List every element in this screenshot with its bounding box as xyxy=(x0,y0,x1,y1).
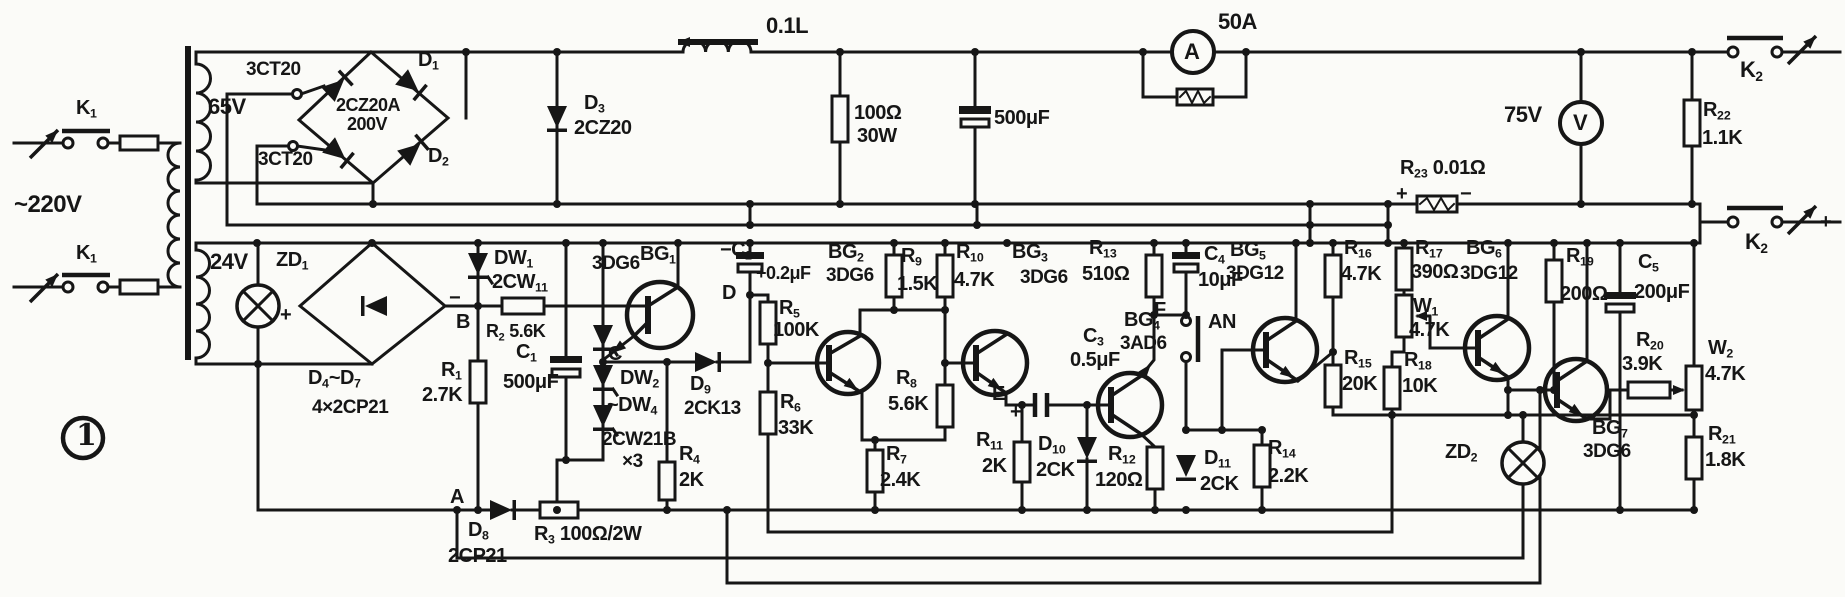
label-bridge1-type: 2CZ20A xyxy=(336,96,400,115)
label-c1: C1 xyxy=(516,342,537,365)
label-bg1-type: 3DG6 xyxy=(592,254,640,274)
label-r18-value: 10K xyxy=(1402,376,1437,397)
label-c1-value: 500μF xyxy=(503,372,558,393)
labels-layer: K1 K1 ~220V 65V 3CT20 3CT20 D1 D2 2CZ20A… xyxy=(0,0,1845,597)
label-r11-value: 2K xyxy=(982,456,1007,477)
label-r5: R5 xyxy=(779,298,800,321)
label-node-e: E xyxy=(992,384,1005,405)
label-node-b: B xyxy=(456,312,470,333)
label-bridge2-plus: + xyxy=(280,305,291,326)
label-100ohm: 100Ω xyxy=(854,103,901,124)
label-r17-value: 390Ω xyxy=(1411,262,1458,283)
label-w2-value: 4.7K xyxy=(1705,364,1745,385)
label-65v: 65V xyxy=(208,95,246,118)
label-r5-value: 100K xyxy=(773,320,819,341)
label-r15-value: 20K xyxy=(1342,374,1377,395)
label-bg1: BG1 xyxy=(640,244,676,267)
label-75v: 75V xyxy=(1504,103,1542,126)
label-r7: R7 xyxy=(886,444,907,467)
label-an: AN xyxy=(1208,312,1236,333)
label-r22: R22 xyxy=(1703,100,1731,123)
label-zd2: ZD2 xyxy=(1445,442,1478,465)
label-r14: R14 xyxy=(1268,438,1296,461)
label-bg4-type: 3AD6 xyxy=(1120,334,1167,354)
label-d8: D8 xyxy=(468,520,489,543)
label-50a: 50A xyxy=(1218,10,1257,33)
label-d10: D10 xyxy=(1038,434,1066,457)
label-bg6-type: 3DG12 xyxy=(1460,264,1518,284)
label-30w: 30W xyxy=(857,126,897,147)
label-k2-top: K2 xyxy=(1740,58,1763,84)
label-r11: R11 xyxy=(976,430,1003,453)
label-r1: R1 xyxy=(441,360,462,383)
label-r23-plus: + xyxy=(1396,184,1407,205)
label-r23-minus: − xyxy=(1460,184,1471,205)
label-node-f: F xyxy=(1154,300,1166,321)
label-c3-minus: − xyxy=(1054,396,1065,417)
label-node-a: A xyxy=(450,487,464,508)
label-zd1: ZD1 xyxy=(276,250,309,273)
label-d10-type: 2CK xyxy=(1036,460,1075,481)
label-d4-d7-type: 4×2CP21 xyxy=(312,398,388,418)
label-d9: D9 xyxy=(690,374,711,397)
label-r1-value: 2.7K xyxy=(422,385,462,406)
label-r16-value: 4.7K xyxy=(1341,264,1381,285)
label-24v: 24V xyxy=(210,250,248,273)
label-bg7-type: 3DG6 xyxy=(1583,442,1631,462)
label-r8-value: 5.6K xyxy=(888,394,928,415)
label-c3-plus: + xyxy=(1010,402,1021,423)
label-r23: R23 0.01Ω xyxy=(1400,158,1485,181)
label-r13: R13 xyxy=(1089,238,1117,261)
label-d1: D1 xyxy=(418,50,439,73)
label-3ct20-top: 3CT20 xyxy=(246,60,301,80)
label-c4: C4 xyxy=(1204,244,1225,267)
label-k1-bottom: K1 xyxy=(76,243,97,266)
label-c5: C5 xyxy=(1638,252,1659,275)
label-r21: R21 xyxy=(1708,424,1736,447)
label-c3: C3 xyxy=(1083,326,1104,349)
label-r9-value: 1.5K xyxy=(897,274,937,295)
label-r20-value: 3.9K xyxy=(1622,354,1662,375)
label-r10-value: 4.7K xyxy=(954,270,994,291)
label-220v: ~220V xyxy=(14,192,82,217)
label-r17: R17 xyxy=(1415,238,1443,261)
label-inductor: 0.1L xyxy=(766,14,808,37)
label-3ct20-bottom: 3CT20 xyxy=(258,150,313,170)
label-dw4: ~DW4 xyxy=(607,395,657,418)
label-d3-type: 2CZ20 xyxy=(574,118,632,139)
label-bg5: BG5 xyxy=(1230,240,1266,263)
label-500uf: 500μF xyxy=(994,108,1049,129)
label-d11-type: 2CK xyxy=(1200,474,1239,495)
label-r10: R10 xyxy=(956,242,984,265)
label-r16: R16 xyxy=(1344,238,1372,261)
label-bridge1-voltage: 200V xyxy=(347,115,387,134)
label-r12: R12 xyxy=(1108,444,1136,467)
label-r6-value: 33K xyxy=(778,418,813,439)
label-output-plus: + xyxy=(1820,212,1831,233)
label-r15: R15 xyxy=(1344,348,1372,371)
figure-number: 1 xyxy=(76,420,96,452)
ammeter-letter: A xyxy=(1184,40,1199,63)
label-r20: R20 xyxy=(1636,330,1664,353)
label-w1-value: 4.7K xyxy=(1409,320,1449,341)
label-node-d: D xyxy=(722,283,736,304)
label-r8: R8 xyxy=(896,368,917,391)
label-bg3-type: 3DG6 xyxy=(1020,268,1068,288)
label-k2-bottom: K2 xyxy=(1745,230,1768,256)
label-bg2: BG2 xyxy=(828,242,864,265)
schematic-page: K1 K1 ~220V 65V 3CT20 3CT20 D1 D2 2CZ20A… xyxy=(0,0,1845,597)
label-bg2-type: 3DG6 xyxy=(826,266,874,286)
label-d2: D2 xyxy=(428,146,449,169)
label-w1: W1 xyxy=(1413,296,1438,319)
label-d4-d7: D4~D7 xyxy=(308,368,361,391)
label-r19: R19 xyxy=(1566,246,1594,269)
label-r4: R4 xyxy=(679,444,700,467)
label-dw1: DW1 xyxy=(494,248,533,271)
label-bg3: BG3 xyxy=(1012,242,1048,265)
label-dw-type: 2CW21B xyxy=(602,430,676,450)
label-dw2: DW2 xyxy=(620,368,659,391)
label-d8-type: 2CP21 xyxy=(448,546,507,567)
label-dw1-type: 2CW11 xyxy=(492,272,548,295)
label-bg6: BG6 xyxy=(1466,238,1502,261)
label-dw-qty: ×3 xyxy=(622,452,643,472)
label-c2-value: +0.2μF xyxy=(756,264,811,283)
label-r21-value: 1.8K xyxy=(1705,450,1745,471)
label-r12-value: 120Ω xyxy=(1095,470,1142,491)
label-d3: D3 xyxy=(584,93,605,116)
voltmeter-letter: V xyxy=(1573,111,1587,134)
label-w2: W2 xyxy=(1708,338,1733,361)
label-r22-value: 1.1K xyxy=(1702,128,1742,149)
label-r13-value: 510Ω xyxy=(1082,264,1129,285)
label-r19-value: 200Ω xyxy=(1560,284,1607,305)
label-k1-top: K1 xyxy=(76,98,97,121)
label-d9-type: 2CK13 xyxy=(684,399,741,419)
label-bg5-type: 3DG12 xyxy=(1226,264,1284,284)
label-bg7: BG7 xyxy=(1592,418,1628,441)
label-c5-value: 200μF xyxy=(1634,282,1689,303)
label-node-c: C xyxy=(608,344,622,365)
label-c3-value: 0.5μF xyxy=(1070,350,1120,371)
label-c2: −C2 xyxy=(720,240,752,263)
label-r9: R9 xyxy=(901,246,922,269)
label-r3: R3 100Ω/2W xyxy=(534,524,641,547)
label-r6: R6 xyxy=(780,392,801,415)
label-r4-value: 2K xyxy=(679,470,704,491)
label-r7-value: 2.4K xyxy=(880,470,920,491)
label-r18: R18 xyxy=(1404,350,1432,373)
label-bridge2-minus: − xyxy=(449,288,460,309)
label-r14-value: 2.2K xyxy=(1268,466,1308,487)
label-d11: D11 xyxy=(1204,448,1231,471)
